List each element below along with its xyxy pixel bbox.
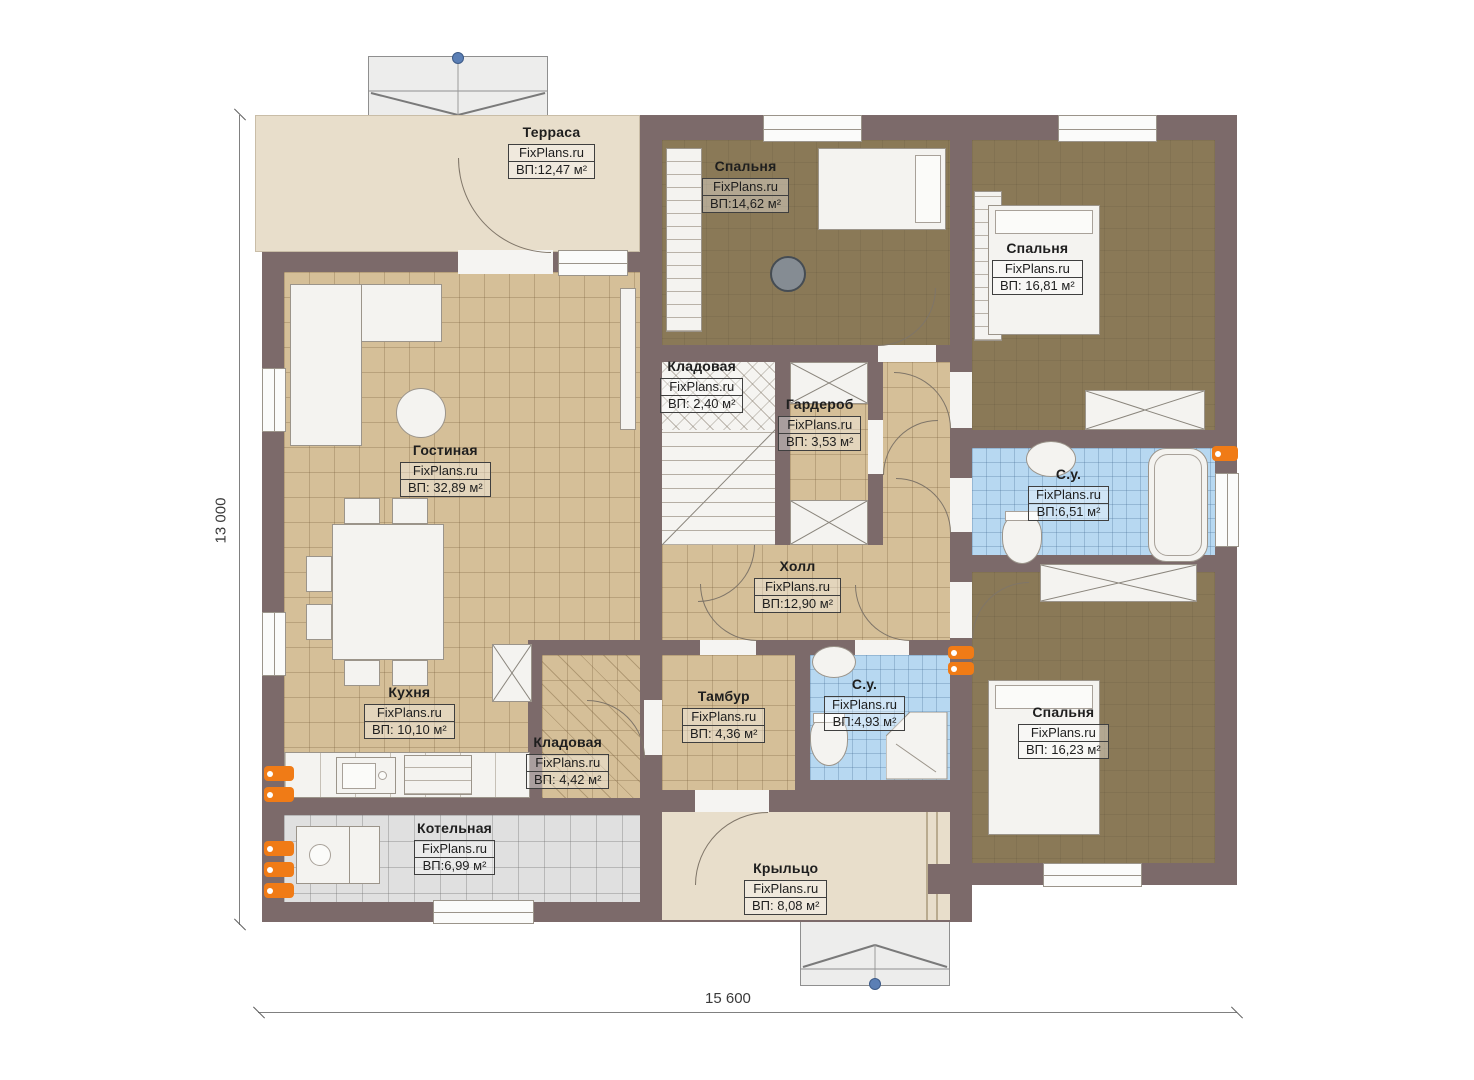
window bbox=[558, 250, 628, 276]
dimension-height-label: 13 000 bbox=[212, 498, 229, 544]
room-name: Холл bbox=[754, 558, 841, 576]
window bbox=[433, 900, 534, 924]
wall-stub bbox=[928, 864, 950, 894]
room-area: ВП: 32,89 м² bbox=[400, 480, 491, 497]
watermark: FixPlans.ru bbox=[660, 378, 743, 396]
sofa bbox=[290, 284, 362, 446]
kitchen-stove bbox=[404, 755, 472, 795]
room-name: Гостиная bbox=[400, 442, 491, 460]
watermark: FixPlans.ru bbox=[414, 840, 495, 858]
kitchen-appliance bbox=[492, 644, 532, 702]
window bbox=[1043, 863, 1142, 887]
door-opening bbox=[695, 790, 769, 812]
watermark: FixPlans.ru bbox=[400, 462, 491, 480]
room-area: ВП:4,93 м² bbox=[824, 714, 905, 731]
chair bbox=[392, 498, 428, 524]
room-label-bedroom-top: Спальня FixPlans.ru ВП:14,62 м² bbox=[702, 158, 789, 213]
room-label-wardrobe: Гардероб FixPlans.ru ВП: 3,53 м² bbox=[778, 396, 861, 451]
chair bbox=[344, 498, 380, 524]
room-label-storage-small: Кладовая FixPlans.ru ВП: 2,40 м² bbox=[660, 358, 743, 413]
room-name: Крыльцо bbox=[744, 860, 827, 878]
room-area: ВП: 4,42 м² bbox=[526, 772, 609, 789]
wall-segment bbox=[795, 655, 810, 790]
wall-segment bbox=[972, 430, 1215, 448]
chair bbox=[306, 556, 332, 592]
kitchen-sink bbox=[336, 757, 396, 794]
dining-table bbox=[332, 524, 444, 660]
bathtub bbox=[1148, 448, 1208, 562]
door-opening bbox=[855, 640, 909, 655]
dimension-tick bbox=[234, 108, 246, 120]
room-name: С.у. bbox=[1028, 466, 1109, 484]
dimension-width-label: 15 600 bbox=[705, 990, 751, 1007]
wall-segment bbox=[795, 780, 950, 795]
room-name: Котельная bbox=[414, 820, 495, 838]
room-area: ВП: 16,81 м² bbox=[992, 278, 1083, 295]
room-name: Спальня bbox=[1018, 704, 1109, 722]
room-label-porch: Крыльцо FixPlans.ru ВП: 8,08 м² bbox=[744, 860, 827, 915]
watermark: FixPlans.ru bbox=[778, 416, 861, 434]
sink bbox=[812, 646, 856, 678]
boiler-unit bbox=[296, 826, 380, 884]
wardrobe-cabinet bbox=[1085, 390, 1205, 430]
room-area: ВП:14,62 м² bbox=[702, 196, 789, 213]
wardrobe-cabinet bbox=[1040, 564, 1197, 602]
room-label-storage-kitchen: Кладовая FixPlans.ru ВП: 4,42 м² bbox=[526, 734, 609, 789]
chair bbox=[306, 604, 332, 640]
room-name: Кухня bbox=[364, 684, 455, 702]
coffee-table bbox=[396, 388, 446, 438]
window bbox=[1215, 473, 1239, 547]
watermark: FixPlans.ru bbox=[508, 144, 595, 162]
closet bbox=[666, 148, 702, 332]
door-opening bbox=[950, 582, 972, 638]
watermark: FixPlans.ru bbox=[992, 260, 1083, 278]
watermark: FixPlans.ru bbox=[744, 880, 827, 898]
room-name: С.у. bbox=[824, 676, 905, 694]
watermark: FixPlans.ru bbox=[1028, 486, 1109, 504]
door-opening bbox=[950, 372, 972, 428]
dimension-line-left bbox=[239, 115, 240, 925]
dimension-line-bottom bbox=[258, 1012, 1237, 1013]
bed bbox=[818, 148, 946, 230]
door-opening bbox=[878, 345, 936, 362]
room-label-kitchen: Кухня FixPlans.ru ВП: 10,10 м² bbox=[364, 684, 455, 739]
wardrobe-cabinet bbox=[790, 500, 868, 545]
room-area: ВП:6,51 м² bbox=[1028, 504, 1109, 521]
watermark: FixPlans.ru bbox=[364, 704, 455, 722]
watermark: FixPlans.ru bbox=[824, 696, 905, 714]
radiator bbox=[264, 787, 294, 802]
window bbox=[262, 612, 286, 676]
floor-plan: 13 000 15 600 bbox=[0, 0, 1474, 1080]
room-area: ВП: 16,23 м² bbox=[1018, 742, 1109, 759]
wall-segment bbox=[284, 798, 662, 815]
room-label-bath-bottom: С.у. FixPlans.ru ВП:4,93 м² bbox=[824, 676, 905, 731]
room-name: Спальня bbox=[992, 240, 1083, 258]
watermark: FixPlans.ru bbox=[702, 178, 789, 196]
tv-unit bbox=[620, 288, 636, 430]
room-label-living: Гостиная FixPlans.ru ВП: 32,89 м² bbox=[400, 442, 491, 497]
door-opening bbox=[700, 640, 756, 655]
room-area: ВП: 4,36 м² bbox=[682, 726, 765, 743]
radiator bbox=[1212, 446, 1238, 461]
exterior-cutout bbox=[972, 885, 1237, 922]
room-area: ВП: 3,53 м² bbox=[778, 434, 861, 451]
door-opening bbox=[644, 700, 662, 755]
watermark: FixPlans.ru bbox=[682, 708, 765, 726]
door-opening bbox=[868, 420, 883, 474]
window bbox=[262, 368, 286, 432]
roof-node-bottom bbox=[869, 978, 881, 990]
wall-segment bbox=[528, 640, 662, 655]
stove-pot bbox=[770, 256, 806, 292]
roof-node-top bbox=[452, 52, 464, 64]
radiator bbox=[948, 662, 974, 675]
watermark: FixPlans.ru bbox=[754, 578, 841, 596]
room-label-hall: Холл FixPlans.ru ВП:12,90 м² bbox=[754, 558, 841, 613]
room-area: ВП: 10,10 м² bbox=[364, 722, 455, 739]
room-name: Гардероб bbox=[778, 396, 861, 414]
canopy-bottom bbox=[800, 918, 950, 986]
radiator bbox=[264, 862, 294, 877]
room-name: Спальня bbox=[702, 158, 789, 176]
room-area: ВП: 8,08 м² bbox=[744, 898, 827, 915]
room-name: Кладовая bbox=[660, 358, 743, 376]
room-label-bedroom-right-top: Спальня FixPlans.ru ВП: 16,81 м² bbox=[992, 240, 1083, 295]
room-label-bath-top: С.у. FixPlans.ru ВП:6,51 м² bbox=[1028, 466, 1109, 521]
room-name: Кладовая bbox=[526, 734, 609, 752]
radiator bbox=[264, 883, 294, 898]
room-area: ВП:12,47 м² bbox=[508, 162, 595, 179]
window bbox=[1058, 115, 1157, 142]
radiator bbox=[264, 766, 294, 781]
room-area: ВП:12,90 м² bbox=[754, 596, 841, 613]
room-name: Терраса bbox=[508, 124, 595, 142]
toilet bbox=[1002, 514, 1042, 564]
door-opening bbox=[950, 478, 972, 532]
room-area: ВП: 2,40 м² bbox=[660, 396, 743, 413]
window bbox=[763, 115, 862, 142]
door-opening bbox=[458, 250, 553, 274]
chair bbox=[344, 660, 380, 686]
stairs bbox=[662, 430, 775, 545]
room-label-tambour: Тамбур FixPlans.ru ВП: 4,36 м² bbox=[682, 688, 765, 743]
watermark: FixPlans.ru bbox=[1018, 724, 1109, 742]
room-area: ВП:6,99 м² bbox=[414, 858, 495, 875]
room-name: Тамбур bbox=[682, 688, 765, 706]
dimension-tick bbox=[234, 918, 246, 930]
radiator bbox=[264, 841, 294, 856]
room-label-terrace: Терраса FixPlans.ru ВП:12,47 м² bbox=[508, 124, 595, 179]
radiator bbox=[948, 646, 974, 659]
room-label-boiler: Котельная FixPlans.ru ВП:6,99 м² bbox=[414, 820, 495, 875]
chair bbox=[392, 660, 428, 686]
watermark: FixPlans.ru bbox=[526, 754, 609, 772]
room-label-bedroom-right-bottom: Спальня FixPlans.ru ВП: 16,23 м² bbox=[1018, 704, 1109, 759]
canopy-top bbox=[368, 56, 548, 118]
